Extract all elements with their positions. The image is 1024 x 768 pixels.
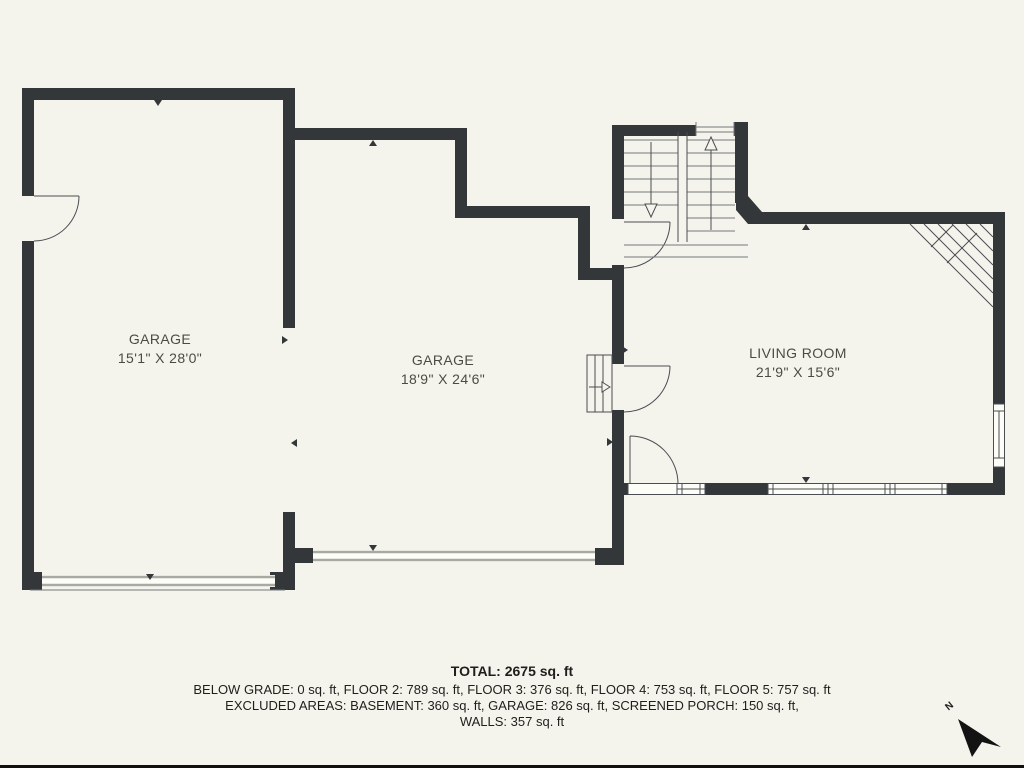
summary-total: TOTAL: 2675 sq. ft (0, 663, 1024, 679)
staircase (624, 122, 748, 257)
step-arrow-head-icon (602, 382, 610, 392)
room-dimensions: 15'1" X 28'0" (118, 349, 202, 368)
middle-garage-walls (295, 128, 624, 565)
stair-right-wall (735, 125, 748, 203)
stair-landing-lines (624, 245, 748, 257)
wall-segment (295, 128, 467, 140)
wall-segment (455, 206, 590, 218)
summary-excluded: EXCLUDED AREAS: BASEMENT: 360 sq. ft, GA… (0, 698, 1024, 714)
wall-segment (612, 125, 624, 219)
marker-icon (291, 439, 297, 447)
area-summary: TOTAL: 2675 sq. ft BELOW GRADE: 0 sq. ft… (0, 663, 1024, 730)
wall-corner (22, 572, 42, 590)
living-room-patio-door (628, 436, 678, 495)
corner-winder-stairs (910, 224, 993, 307)
summary-floors: BELOW GRADE: 0 sq. ft, FLOOR 2: 789 sq. … (0, 682, 1024, 698)
wall-segment (993, 212, 1005, 404)
room-label-garage-middle: GARAGE 18'9" X 24'6" (401, 351, 485, 389)
left-garage-door (30, 575, 285, 590)
wall-segment (455, 128, 467, 218)
wall-segment (22, 88, 34, 590)
winder-tread-lines (910, 224, 993, 307)
room-label-garage-left: GARAGE 15'1" X 28'0" (118, 330, 202, 368)
stairs-up-arrow-icon (705, 137, 717, 150)
middle-garage-door (313, 550, 595, 562)
steps-outline (587, 355, 612, 412)
marker-icon (154, 100, 162, 106)
stairs-down-arrow-icon (645, 204, 657, 217)
wall-segment (22, 88, 295, 100)
wall-segment (705, 483, 768, 495)
room-dimensions: 21'9" X 15'6" (749, 363, 847, 382)
door-threshold (628, 484, 678, 495)
door-opening (612, 364, 624, 410)
door-swing (34, 196, 79, 241)
door-swing (624, 366, 670, 412)
closet-door (612, 219, 670, 268)
exterior-door-left-garage (22, 196, 79, 241)
floor-plan-drawing (0, 0, 1024, 768)
entry-steps (587, 355, 612, 412)
room-name: GARAGE (118, 330, 202, 349)
door-opening (22, 196, 34, 241)
wall-segment (283, 100, 295, 328)
room-label-living-room: LIVING ROOM 21'9" X 15'6" (749, 344, 847, 382)
wall-segment (755, 212, 1005, 224)
door-opening (612, 219, 624, 265)
door-swing (630, 436, 678, 484)
living-room-windows (677, 404, 1005, 495)
wall-corner (612, 483, 629, 495)
marker-icon (802, 224, 810, 230)
room-name: LIVING ROOM (749, 344, 847, 363)
room-dimensions: 18'9" X 24'6" (401, 370, 485, 389)
summary-walls: WALLS: 357 sq. ft (0, 714, 1024, 730)
floor-plan-canvas: GARAGE 15'1" X 28'0" GARAGE 18'9" X 24'6… (0, 0, 1024, 768)
marker-icon (369, 140, 377, 146)
marker-icon (622, 346, 628, 354)
room-name: GARAGE (401, 351, 485, 370)
dimension-markers (146, 100, 999, 580)
wall-corner (295, 548, 313, 563)
wall-segment (947, 483, 1005, 495)
garage-entry-door (612, 364, 670, 412)
marker-icon (282, 336, 288, 344)
stair-divider (678, 132, 687, 242)
stair-top-wall (612, 125, 696, 136)
winder-cross-lines (931, 225, 977, 263)
marker-icon (802, 477, 810, 483)
